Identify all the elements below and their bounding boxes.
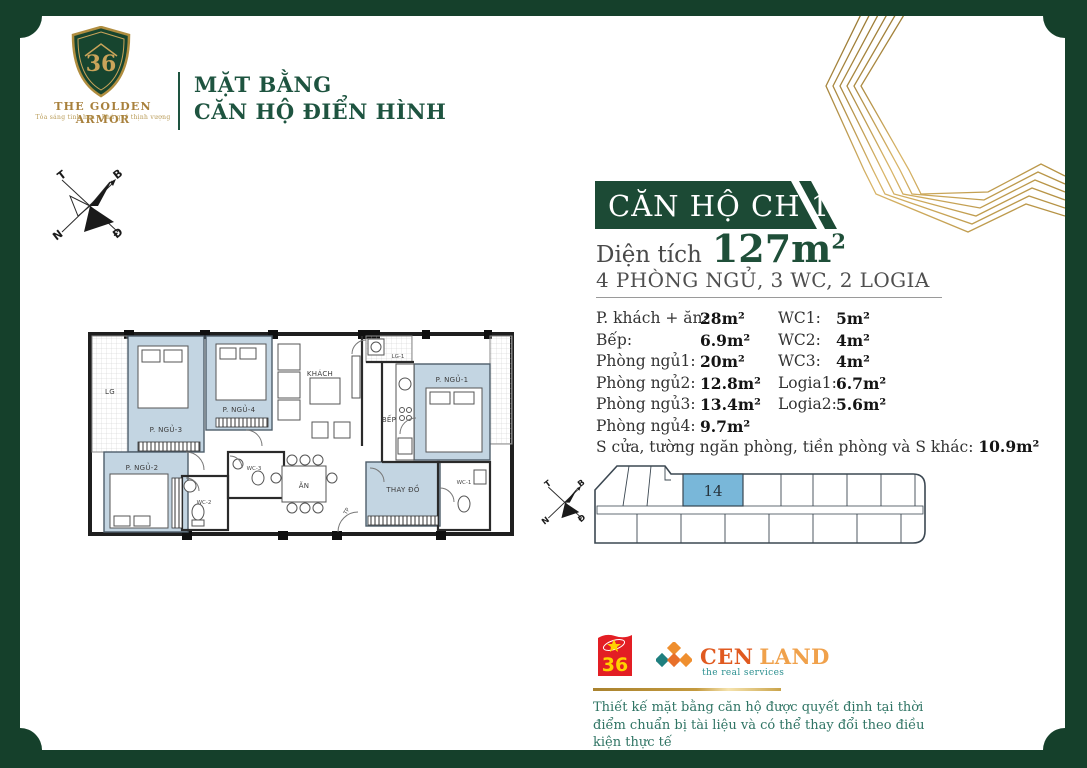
- logo-tagline: Tỏa sáng tinh hoa - Phú quý thịnh vượng: [30, 114, 176, 121]
- room-label: LG: [105, 388, 115, 396]
- specs-note: S cửa, tường ngăn phòng, tiền phòng và S…: [596, 437, 1039, 456]
- page-title-line2: CĂN HỘ ĐIỂN HÌNH: [194, 99, 446, 124]
- room-label: TP: [342, 507, 351, 517]
- compass-west-label: T: [55, 168, 69, 183]
- spec-row: Logia2:5.6m²: [778, 394, 837, 416]
- header-divider: [178, 72, 180, 130]
- area-value: 127m2: [712, 226, 846, 271]
- specs-right-column: WC1:5m² WC2:4m² WC3:4m² Logia1:6.7m² Log…: [778, 308, 837, 416]
- svg-text:36: 36: [86, 51, 117, 77]
- floor-plan-drawing: LG P. NGỦ-3 P. NGỦ-4 KHÁCH LG-1 BẾP P. N…: [86, 328, 516, 542]
- area-label: Diện tích: [596, 242, 702, 268]
- room-label: WC-1: [457, 480, 472, 486]
- corner-decoration: [20, 728, 42, 750]
- golden-armor-shield-logo: 36: [70, 26, 132, 98]
- footer-gold-divider: [593, 688, 781, 691]
- disclaimer-text: Thiết kế mặt bằng căn hộ được quyết định…: [593, 699, 941, 752]
- room-label: ĂN: [299, 481, 310, 490]
- spec-row: WC1:5m²: [778, 308, 837, 330]
- cenland-diamonds-icon: [656, 642, 692, 678]
- cenland-wordmark: CENLAND: [700, 644, 830, 669]
- room-label: P. NGỦ-3: [150, 424, 183, 434]
- apartment-summary: 4 PHÒNG NGỦ, 3 WC, 2 LOGIA: [596, 268, 930, 292]
- svg-text:36: 36: [602, 654, 628, 676]
- spec-row: Phòng ngủ2:12.8m²: [596, 373, 708, 395]
- room-label: WC-2: [197, 500, 212, 506]
- room-label: BẾP: [382, 414, 396, 424]
- apartment-title-banner: CĂN HỘ CH 14: [595, 181, 840, 229]
- summary-divider: [596, 297, 942, 298]
- spec-row: Phòng ngủ4:9.7m²: [596, 416, 708, 438]
- compass-north-label: B: [111, 167, 126, 182]
- compass-south-label: N: [50, 227, 65, 243]
- spec-row: WC2:4m²: [778, 330, 837, 352]
- spec-row: Logia1:6.7m²: [778, 373, 837, 395]
- corner-decoration: [20, 16, 42, 38]
- spec-row: P. khách + ăn:28m²: [596, 308, 708, 330]
- logo-wordmark: THE GOLDEN ARMOR: [38, 100, 168, 126]
- apartment-title: CĂN HỘ CH 14: [608, 188, 840, 223]
- page-title-line1: MẶT BẰNG: [194, 72, 332, 97]
- specs-left-column: P. khách + ăn:28m² Bếp:6.9m² Phòng ngủ1:…: [596, 308, 708, 438]
- room-label: LG-1: [392, 354, 405, 360]
- compass-east-label: Đ: [110, 225, 125, 241]
- compass-icon: T B N Đ: [48, 164, 132, 246]
- compass-west-label: T: [542, 478, 553, 490]
- brochure-page: 36 THE GOLDEN ARMOR Tỏa sáng tinh hoa - …: [0, 0, 1087, 768]
- room-label: P. NGỦ-1: [436, 374, 469, 384]
- 36-corporation-logo: 36: [596, 632, 634, 678]
- room-label: THAY ĐỒ: [385, 484, 420, 494]
- room-label: P. NGỦ-2: [126, 462, 159, 472]
- area-row: Diện tích 127m2: [596, 226, 846, 271]
- corner-decoration: [1043, 728, 1065, 750]
- compass-south-label: N: [540, 514, 551, 526]
- cenland-subtitle: the real services: [702, 668, 784, 678]
- spec-row: Phòng ngủ3:13.4m²: [596, 394, 708, 416]
- spec-row: WC3:4m²: [778, 351, 837, 373]
- spec-row: Phòng ngủ1:20m²: [596, 351, 708, 373]
- key-plan-compass-icon: T B N Đ: [540, 476, 590, 528]
- building-key-plan: 14: [585, 458, 947, 554]
- room-label: WC-3: [247, 466, 262, 472]
- room-label: P. NGỦ-4: [223, 404, 256, 414]
- spec-row: Bếp:6.9m²: [596, 330, 708, 352]
- room-label: KHÁCH: [307, 369, 333, 378]
- key-plan-unit-number: 14: [703, 482, 722, 500]
